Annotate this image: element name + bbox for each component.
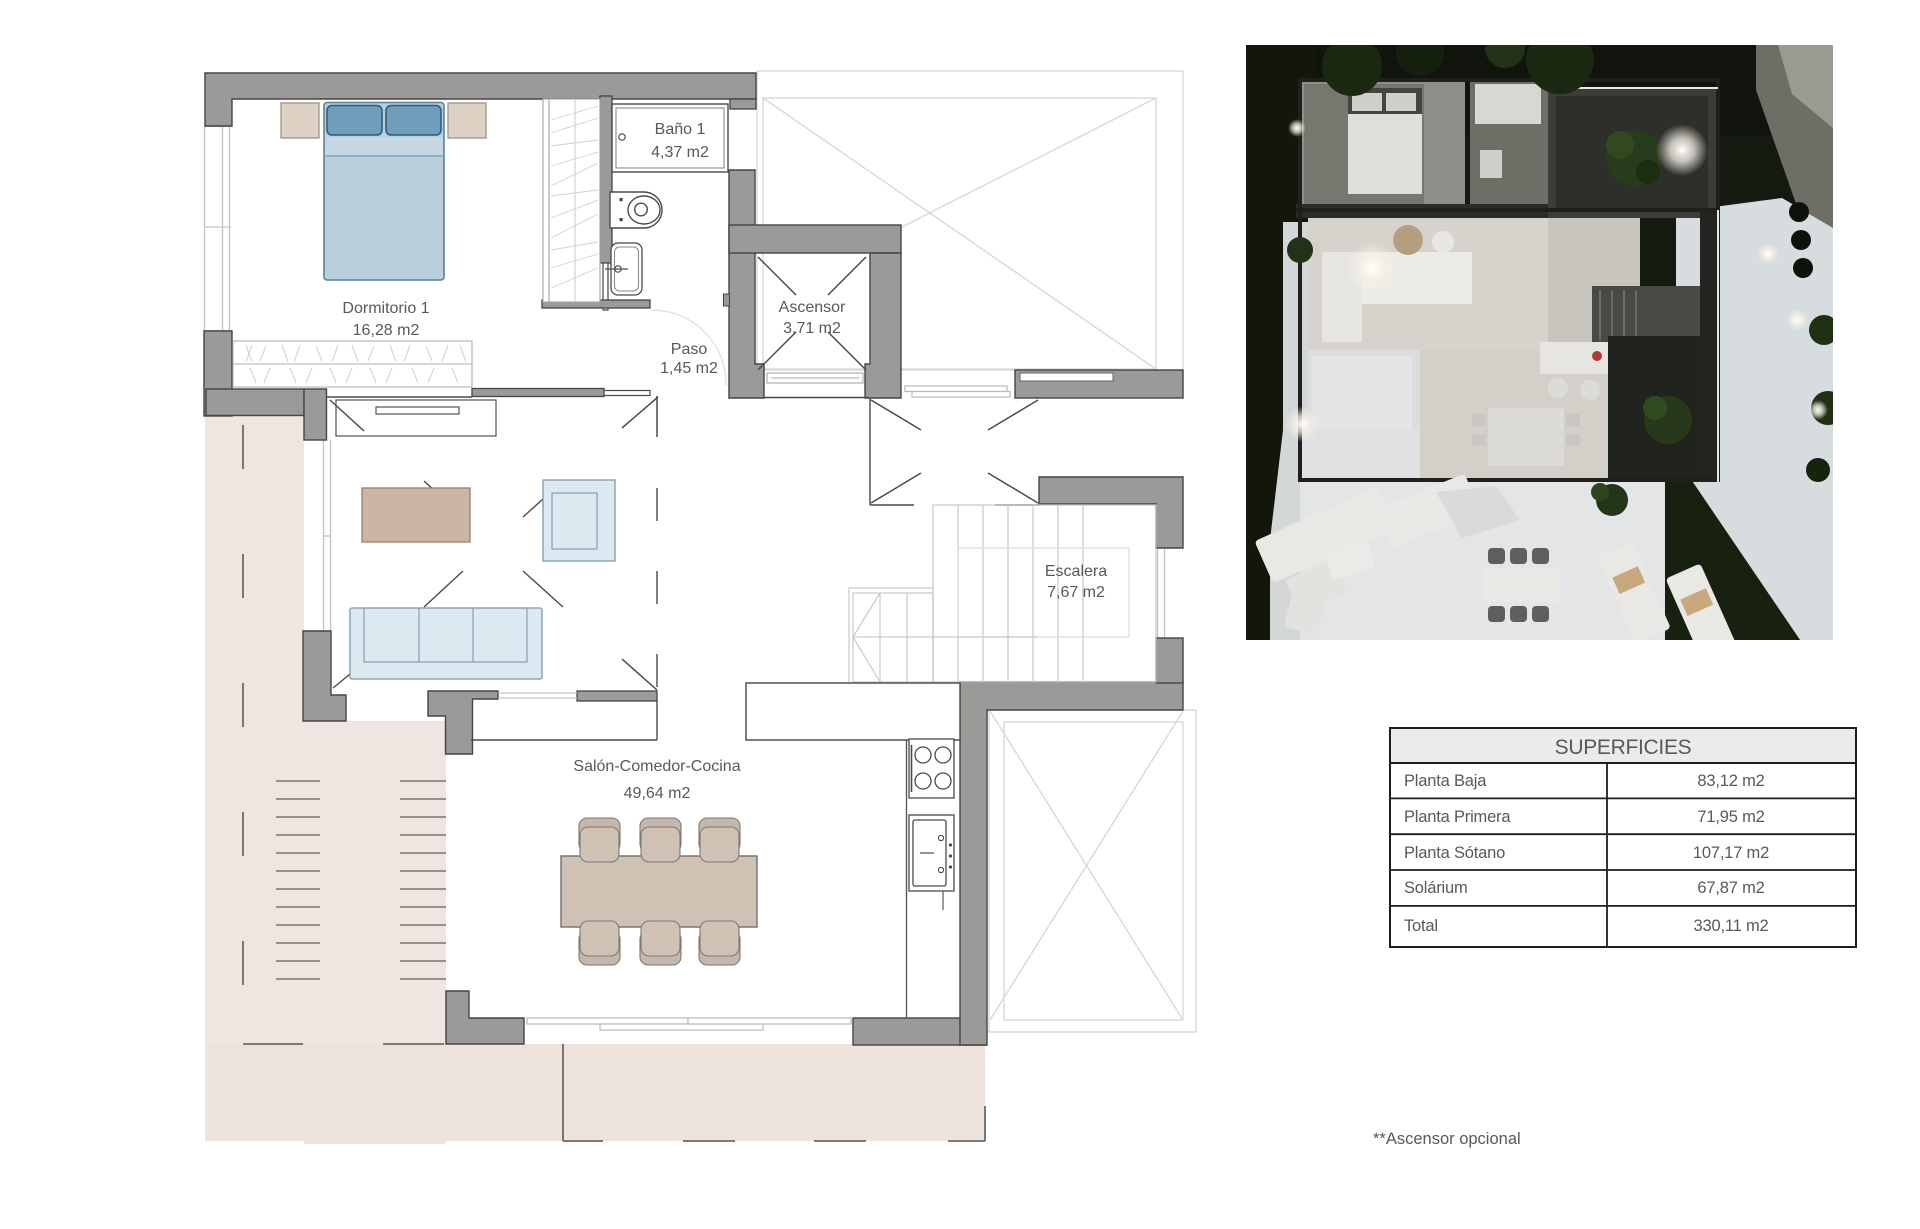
svg-text:71,95 m2: 71,95 m2 — [1697, 808, 1764, 826]
svg-text:Planta Primera: Planta Primera — [1404, 808, 1511, 826]
svg-text:330,11 m2: 330,11 m2 — [1694, 917, 1769, 935]
svg-text:**Ascensor opcional: **Ascensor opcional — [1373, 1130, 1521, 1148]
svg-text:Baño 1: Baño 1 — [655, 121, 706, 138]
svg-text:7,67 m2: 7,67 m2 — [1047, 584, 1105, 601]
svg-text:Escalera: Escalera — [1045, 563, 1107, 580]
svg-text:Paso: Paso — [671, 341, 708, 358]
svg-text:SUPERFICIES: SUPERFICIES — [1555, 736, 1692, 759]
svg-text:16,28 m2: 16,28 m2 — [353, 322, 420, 339]
svg-text:107,17 m2: 107,17 m2 — [1693, 844, 1769, 862]
svg-text:3,71 m2: 3,71 m2 — [783, 320, 841, 337]
svg-text:83,12 m2: 83,12 m2 — [1697, 772, 1764, 790]
svg-text:Planta Sótano: Planta Sótano — [1404, 844, 1505, 862]
svg-text:Planta Baja: Planta Baja — [1404, 772, 1487, 790]
svg-text:Ascensor: Ascensor — [779, 299, 846, 316]
svg-text:1,45 m2: 1,45 m2 — [660, 360, 718, 377]
svg-text:Salón-Comedor-Cocina: Salón-Comedor-Cocina — [573, 758, 740, 775]
svg-text:Dormitorio 1: Dormitorio 1 — [342, 300, 429, 317]
svg-text:Total: Total — [1404, 917, 1438, 935]
svg-text:4,37 m2: 4,37 m2 — [651, 144, 709, 161]
svg-text:49,64 m2: 49,64 m2 — [624, 785, 691, 802]
svg-text:Solárium: Solárium — [1404, 879, 1468, 897]
svg-text:67,87 m2: 67,87 m2 — [1697, 879, 1764, 897]
